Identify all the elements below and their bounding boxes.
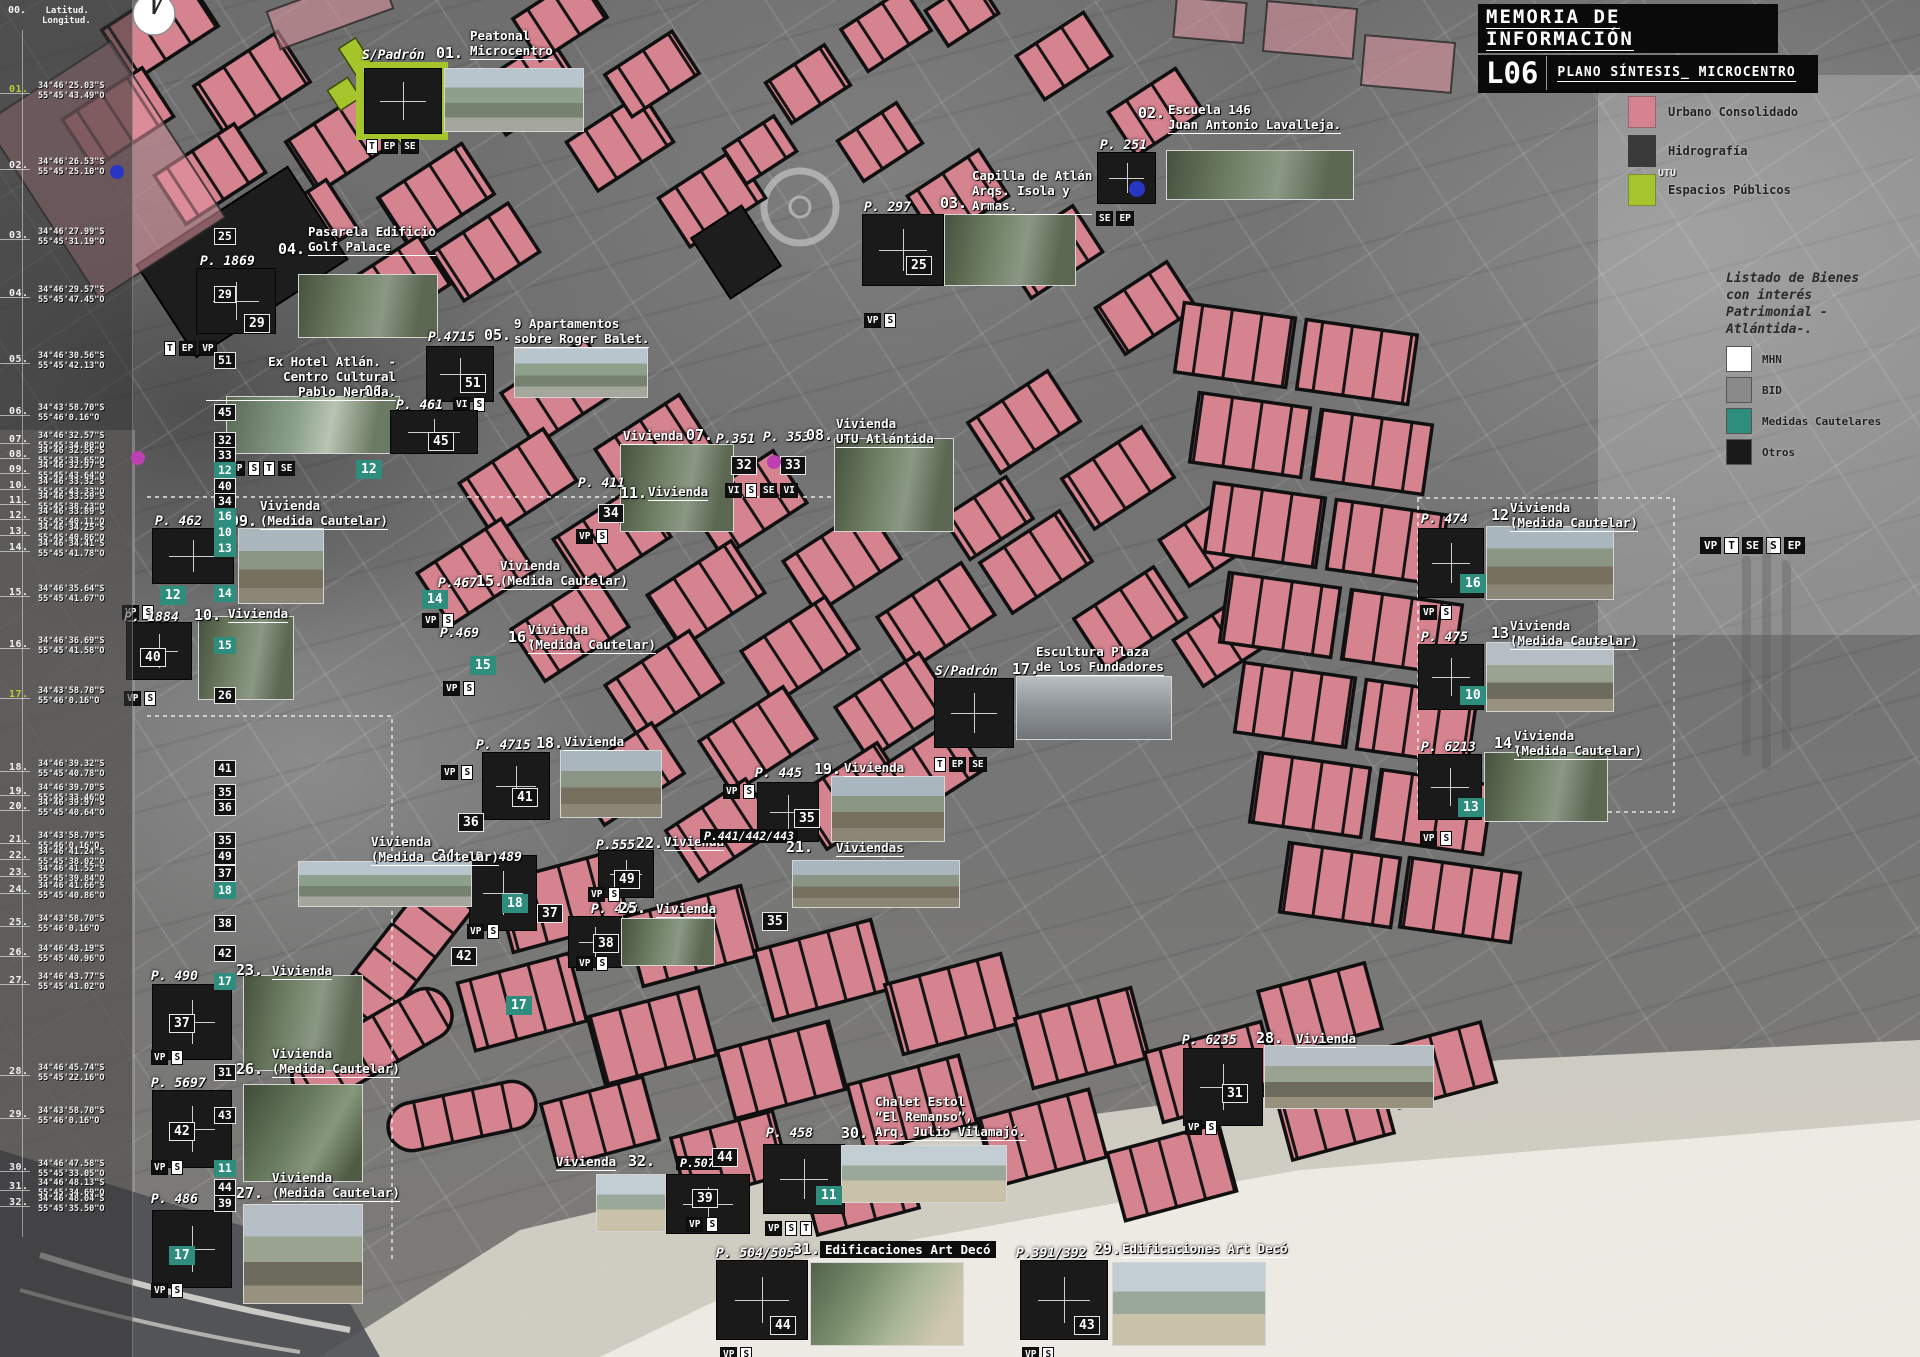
listing-number-badge: 35 [214, 832, 236, 849]
heritage-title-line: Atlántida-. [1726, 321, 1916, 338]
sheet-code: L06 [1486, 56, 1547, 90]
category-badge-strip: VPTSESEP [1700, 534, 1808, 554]
entry-index: 04. [9, 288, 29, 299]
entry-index: 07. [9, 434, 29, 445]
entry-index: 29. [9, 1109, 29, 1120]
listing-number-badge: 17 [214, 973, 236, 990]
location-dot [110, 165, 124, 179]
entry-index: 32. [9, 1197, 29, 1208]
entry-index: 20. [9, 801, 29, 812]
category-chip-vp: VP [1700, 537, 1721, 554]
heritage-swatch [1726, 377, 1752, 403]
listing-number-badge: 11 [214, 1160, 236, 1177]
location-dot [1129, 181, 1145, 197]
longitude-value: 55°45'40.64"O [38, 809, 105, 819]
entry-index: 27. [9, 975, 29, 986]
entry-index: 17. [9, 689, 29, 700]
listing-number-badge: 14 [214, 585, 236, 602]
dashed-zone [147, 716, 392, 1261]
listing-number-badge: 39 [214, 1195, 236, 1212]
heritage-label: MHN [1762, 353, 1782, 366]
heritage-swatch [1726, 408, 1752, 434]
entry-index: 21. [9, 834, 29, 845]
entry-index: 06. [9, 406, 29, 417]
listing-number-badge: 29 [214, 286, 236, 303]
legend-swatch [1628, 174, 1656, 206]
dashed-zone [1418, 498, 1674, 812]
entry-index: 30. [9, 1162, 29, 1173]
entry-index: 11. [9, 495, 29, 506]
entry-index: 03. [9, 230, 29, 241]
map-stage: S/Padrón01.PeatonalMicrocentroTEPSEP. 25… [0, 0, 1920, 1357]
entry-index: 05. [9, 354, 29, 365]
entry-index: 25. [9, 917, 29, 928]
heritage-legend-row-0: MHN [1726, 346, 1916, 372]
sidebar-header-index: 00. [8, 5, 26, 16]
sheet-bar: L06 PLANO SÍNTESIS_ MICROCENTRO [1478, 55, 1818, 93]
listing-number-badge: 13 [214, 540, 236, 557]
entry-index: 08. [9, 449, 29, 460]
entry-index: 22. [9, 850, 29, 861]
rotated-sidenote [1782, 560, 1791, 750]
entry-index: 10. [9, 480, 29, 491]
listing-number-badge: 25 [214, 228, 236, 245]
sidebar-header: 00. Latitud. Longitud. [8, 6, 91, 26]
legend-row-0: Urbano Consolidado [1628, 96, 1798, 128]
longitude-value: 55°45'25.10"O [38, 168, 105, 178]
listing-number-badge: 41 [214, 760, 236, 777]
heritage-legend-row-3: Otros [1726, 439, 1916, 465]
heritage-legend: Listado de Bienescon interésPatrimonial … [1726, 270, 1916, 470]
listing-number-badge: 26 [214, 687, 236, 704]
entry-index: 19. [9, 786, 29, 797]
listing-number-badge: 18 [214, 882, 236, 899]
listing-number-badge: 43 [214, 1107, 236, 1124]
category-chip-t: T [1724, 537, 1739, 554]
rotated-sidenote [1762, 540, 1771, 770]
legend-swatch [1628, 135, 1656, 167]
sidebar-rule [22, 30, 23, 1237]
heritage-swatch [1726, 439, 1752, 465]
longitude-value: 55°46'0.16"O [38, 697, 105, 707]
rotated-sidenote [1742, 556, 1751, 756]
heritage-title-line: Listado de Bienes [1726, 270, 1916, 287]
category-chip-se: SE [1742, 537, 1763, 554]
listing-number-badge: 45 [214, 404, 236, 421]
entry-index: 02. [9, 160, 29, 171]
legend-row-2: Espacios Públicos [1628, 174, 1798, 206]
longitude-value: 55°45'43.49"O [38, 92, 105, 102]
heritage-swatch [1726, 346, 1752, 372]
heritage-legend-row-2: Medidas Cautelares [1726, 408, 1916, 434]
entry-index: 15. [9, 587, 29, 598]
longitude-value: 55°46'0.16"O [38, 414, 105, 424]
entry-index: 28. [9, 1066, 29, 1077]
listing-number-badge: 12 [214, 462, 236, 479]
entry-index: 13. [9, 526, 29, 537]
entry-index: 16. [9, 639, 29, 650]
entry-index: 31. [9, 1181, 29, 1192]
heritage-label: Medidas Cautelares [1762, 415, 1881, 428]
entry-index: 18. [9, 762, 29, 773]
longitude-value: 55°46'0.16"O [38, 1117, 105, 1127]
document-title: MEMORIA DE INFORMACIÓN [1486, 6, 1634, 51]
listing-number-badge: 37 [214, 865, 236, 882]
listing-number-badge: 49 [214, 848, 236, 865]
entry-index: 09. [9, 464, 29, 475]
entry-index: 24. [9, 884, 29, 895]
listing-number-badge: 10 [214, 524, 236, 541]
heritage-title-line: Patrimonial - [1726, 304, 1916, 321]
legend-row-1: Hidrografía [1628, 135, 1798, 167]
entry-index: 01. [9, 84, 29, 95]
legend-label: Espacios Públicos [1668, 183, 1791, 197]
longitude-value: 55°45'42.13"O [38, 362, 105, 372]
legend-label: Hidrografía [1668, 144, 1747, 158]
category-chip-ep: EP [1784, 537, 1805, 554]
heritage-label: Otros [1762, 446, 1795, 459]
longitude-value: 55°46'0.16"O [38, 925, 105, 935]
listing-number-badge: 42 [214, 945, 236, 962]
location-dot [131, 451, 145, 465]
title-block: MEMORIA DE INFORMACIÓN L06 PLANO SÍNTESI… [1478, 4, 1818, 93]
longitude-value: 55°45'47.45"O [38, 296, 105, 306]
listing-number-badge: 51 [214, 352, 236, 369]
longitude-value: 55°45'41.78"O [38, 550, 105, 560]
heritage-legend-title: Listado de Bienescon interésPatrimonial … [1726, 270, 1916, 338]
location-dot [767, 455, 781, 469]
heritage-label: BID [1762, 384, 1782, 397]
longitude-value: 55°45'22.16"O [38, 1074, 105, 1084]
sheet-subtitle: PLANO SÍNTESIS_ MICROCENTRO [1557, 65, 1795, 82]
longitude-value: 55°45'35.50"O [38, 1205, 105, 1215]
longitude-value: 55°45'40.78"O [38, 770, 105, 780]
longitude-value: 55°45'41.67"O [38, 595, 105, 605]
entry-index: 23. [9, 867, 29, 878]
map-legend: Urbano ConsolidadoHidrografíaEspacios Pú… [1628, 96, 1798, 213]
legend-swatch [1628, 96, 1656, 128]
coordinates-sidebar: 00. Latitud. Longitud. 01.34°46'25.03"S5… [0, 0, 133, 1357]
listing-number-badge: 44 [214, 1179, 236, 1196]
longitude-value: 55°45'40.86"O [38, 892, 105, 902]
entry-index: 12. [9, 510, 29, 521]
entry-index: 14. [9, 542, 29, 553]
map-inscription: UTU [1658, 168, 1676, 179]
heritage-legend-row-1: BID [1726, 377, 1916, 403]
listing-number-badge: 38 [214, 915, 236, 932]
sidebar-header-lon: Longitud. [42, 16, 91, 26]
document-title-bar: MEMORIA DE INFORMACIÓN [1478, 4, 1778, 53]
longitude-value: 55°45'41.02"O [38, 983, 105, 993]
listing-number-badge: 15 [214, 637, 236, 654]
heritage-title-line: con interés [1726, 287, 1916, 304]
listing-number-badge: 16 [214, 508, 236, 525]
longitude-value: 55°45'40.96"O [38, 955, 105, 965]
listing-number-badge: 36 [214, 799, 236, 816]
longitude-value: 55°45'41.58"O [38, 647, 105, 657]
entry-index: 26. [9, 947, 29, 958]
longitude-value: 55°45'31.19"O [38, 238, 105, 248]
legend-label: Urbano Consolidado [1668, 105, 1798, 119]
sidebar-header-lat: Latitud. [45, 6, 88, 16]
listing-number-badge: 31 [214, 1064, 236, 1081]
